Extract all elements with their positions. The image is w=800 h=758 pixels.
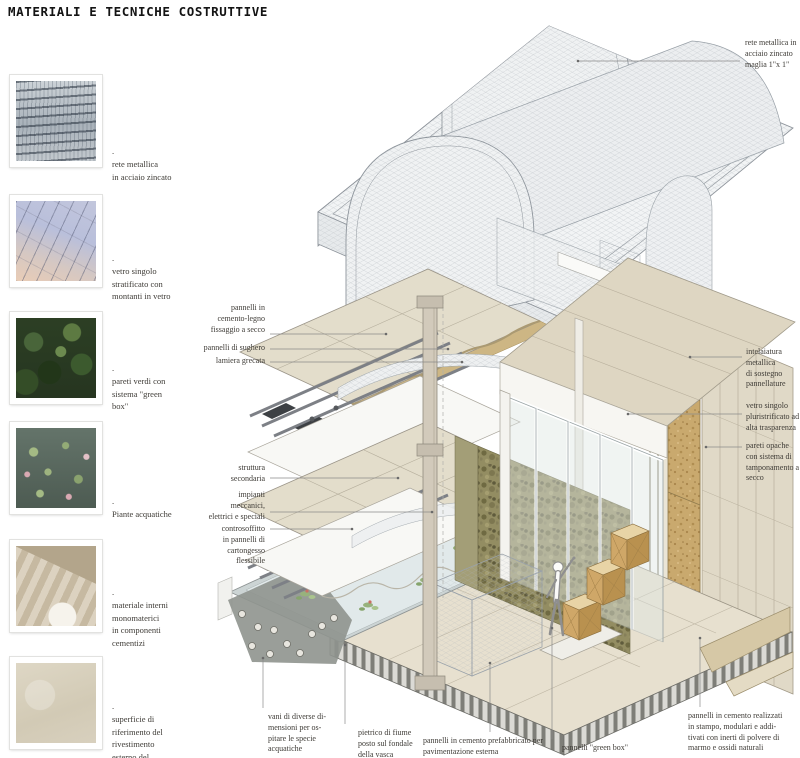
legend-caption-glass: . vetro singolo stratificato con montant… xyxy=(112,252,192,303)
legend-caption-green-wall: . pareti verdi con sistema "green box" xyxy=(112,362,192,413)
callout-lamiera: lamiera grecata xyxy=(175,356,265,367)
callout-cemento-stampo: pannelli in cemento realizzati in stampo… xyxy=(688,711,800,754)
callout-green-box: pannelli "green box" xyxy=(562,743,657,754)
callout-pietrisco: pietrico di fiume posto sul fondale dell… xyxy=(358,728,430,758)
callout-pavimentazione: pannelli in cemento prefabbricato per pa… xyxy=(423,736,583,758)
callout-pareti-opache: pareti opache con sistema di tamponament… xyxy=(746,441,800,484)
legend-caption-outer-surface: . superficie di riferimento del rivestim… xyxy=(112,700,192,758)
photo-water-lilies xyxy=(10,422,102,514)
photo-glass-facade xyxy=(10,195,102,287)
photo-concrete-surface xyxy=(10,657,102,749)
photo-green-wall xyxy=(10,312,102,404)
callout-rete: rete metallica in acciaio zincato maglia… xyxy=(745,38,799,70)
legend-caption-cement-interiors: . materiale interni monomaterici in comp… xyxy=(112,586,192,650)
callout-controsoffitto: controsoffitto in pannelli di cartongess… xyxy=(175,524,265,567)
photo-concrete-stairs xyxy=(10,540,102,632)
callout-intelaiatura: intelaiatura metallica di sostegno panne… xyxy=(746,347,800,390)
legend-caption-metal-mesh: . rete metallica in acciaio zincato xyxy=(112,145,192,183)
callout-vetro: vetro singolo pluristrificato ad alta tr… xyxy=(746,401,800,433)
page-title: MATERIALI E TECNICHE COSTRUTTIVE xyxy=(8,4,268,19)
callout-vani: vani di diverse di- mensioni per os- pit… xyxy=(268,712,350,755)
callout-sughero: pannelli di sughero xyxy=(175,343,265,354)
callout-struttura: struttura secondaria xyxy=(175,463,265,485)
photo-metal-mesh xyxy=(10,75,102,167)
page: MATERIALI E TECNICHE COSTRUTTIVE . rete … xyxy=(0,0,800,758)
callout-impianti: impianti meccanici, elettrici e speciali xyxy=(175,490,265,522)
callout-cemento-legno: pannelli in cemento-legno fissaggio a se… xyxy=(175,303,265,335)
